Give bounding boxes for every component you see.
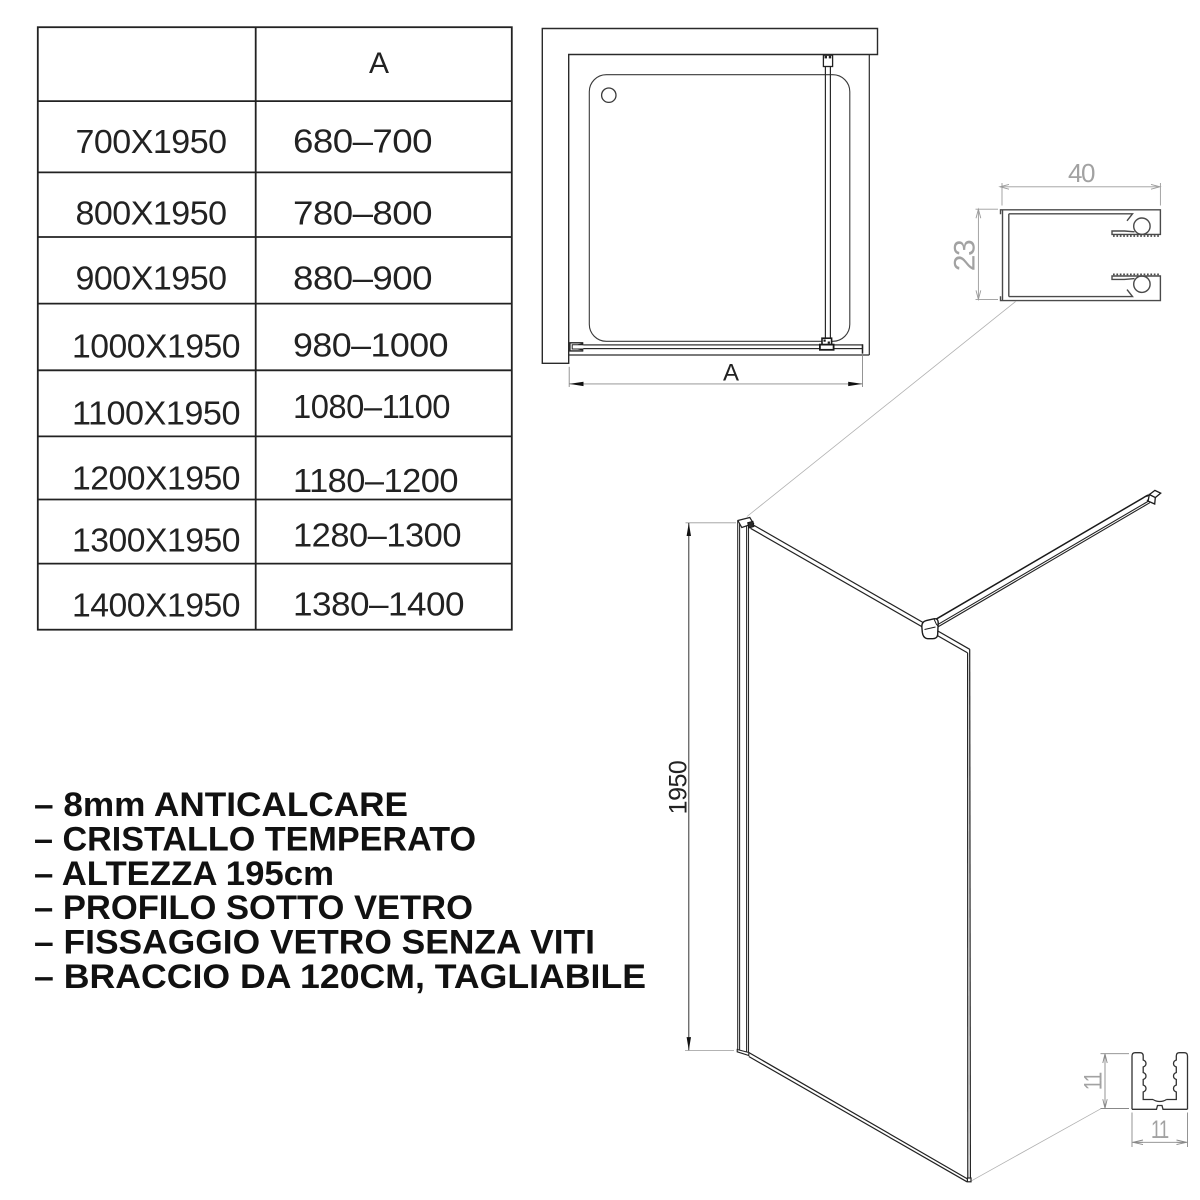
svg-text:11: 11 bbox=[1151, 1116, 1168, 1144]
svg-text:780–800: 780–800 bbox=[293, 195, 432, 232]
svg-text:– FISSAGGIO VETRO SENZA VITI: – FISSAGGIO VETRO SENZA VITI bbox=[34, 924, 595, 962]
svg-text:880–900: 880–900 bbox=[293, 261, 432, 298]
svg-text:1100X1950: 1100X1950 bbox=[72, 395, 240, 432]
svg-text:1080–1100: 1080–1100 bbox=[293, 389, 450, 426]
svg-text:40: 40 bbox=[1068, 158, 1095, 188]
svg-text:1300X1950: 1300X1950 bbox=[72, 523, 240, 560]
svg-text:900X1950: 900X1950 bbox=[76, 261, 227, 298]
svg-text:1380–1400: 1380–1400 bbox=[293, 587, 464, 624]
svg-text:1000X1950: 1000X1950 bbox=[72, 329, 240, 366]
svg-text:23: 23 bbox=[949, 240, 982, 271]
svg-text:680–700: 680–700 bbox=[293, 124, 432, 161]
svg-text:1400X1950: 1400X1950 bbox=[72, 588, 240, 625]
svg-text:– PROFILO SOTTO VETRO: – PROFILO SOTTO VETRO bbox=[34, 889, 473, 927]
svg-text:A: A bbox=[369, 47, 389, 80]
svg-text:700X1950: 700X1950 bbox=[76, 124, 227, 161]
svg-text:1200X1950: 1200X1950 bbox=[72, 460, 240, 497]
svg-text:980–1000: 980–1000 bbox=[293, 328, 448, 365]
svg-text:– BRACCIO DA 120CM, TAGLIABILE: – BRACCIO DA 120CM, TAGLIABILE bbox=[34, 958, 646, 996]
svg-text:1280–1300: 1280–1300 bbox=[293, 518, 461, 555]
svg-text:– ALTEZZA 195cm: – ALTEZZA 195cm bbox=[34, 855, 334, 893]
svg-text:800X1950: 800X1950 bbox=[76, 195, 227, 232]
svg-text:1950: 1950 bbox=[665, 761, 693, 815]
svg-text:1180–1200: 1180–1200 bbox=[293, 463, 458, 500]
svg-text:A: A bbox=[723, 359, 739, 386]
svg-text:– 8mm ANTICALCARE: – 8mm ANTICALCARE bbox=[34, 786, 408, 824]
svg-text:11: 11 bbox=[1080, 1073, 1108, 1090]
svg-text:– CRISTALLO TEMPERATO: – CRISTALLO TEMPERATO bbox=[34, 820, 476, 858]
